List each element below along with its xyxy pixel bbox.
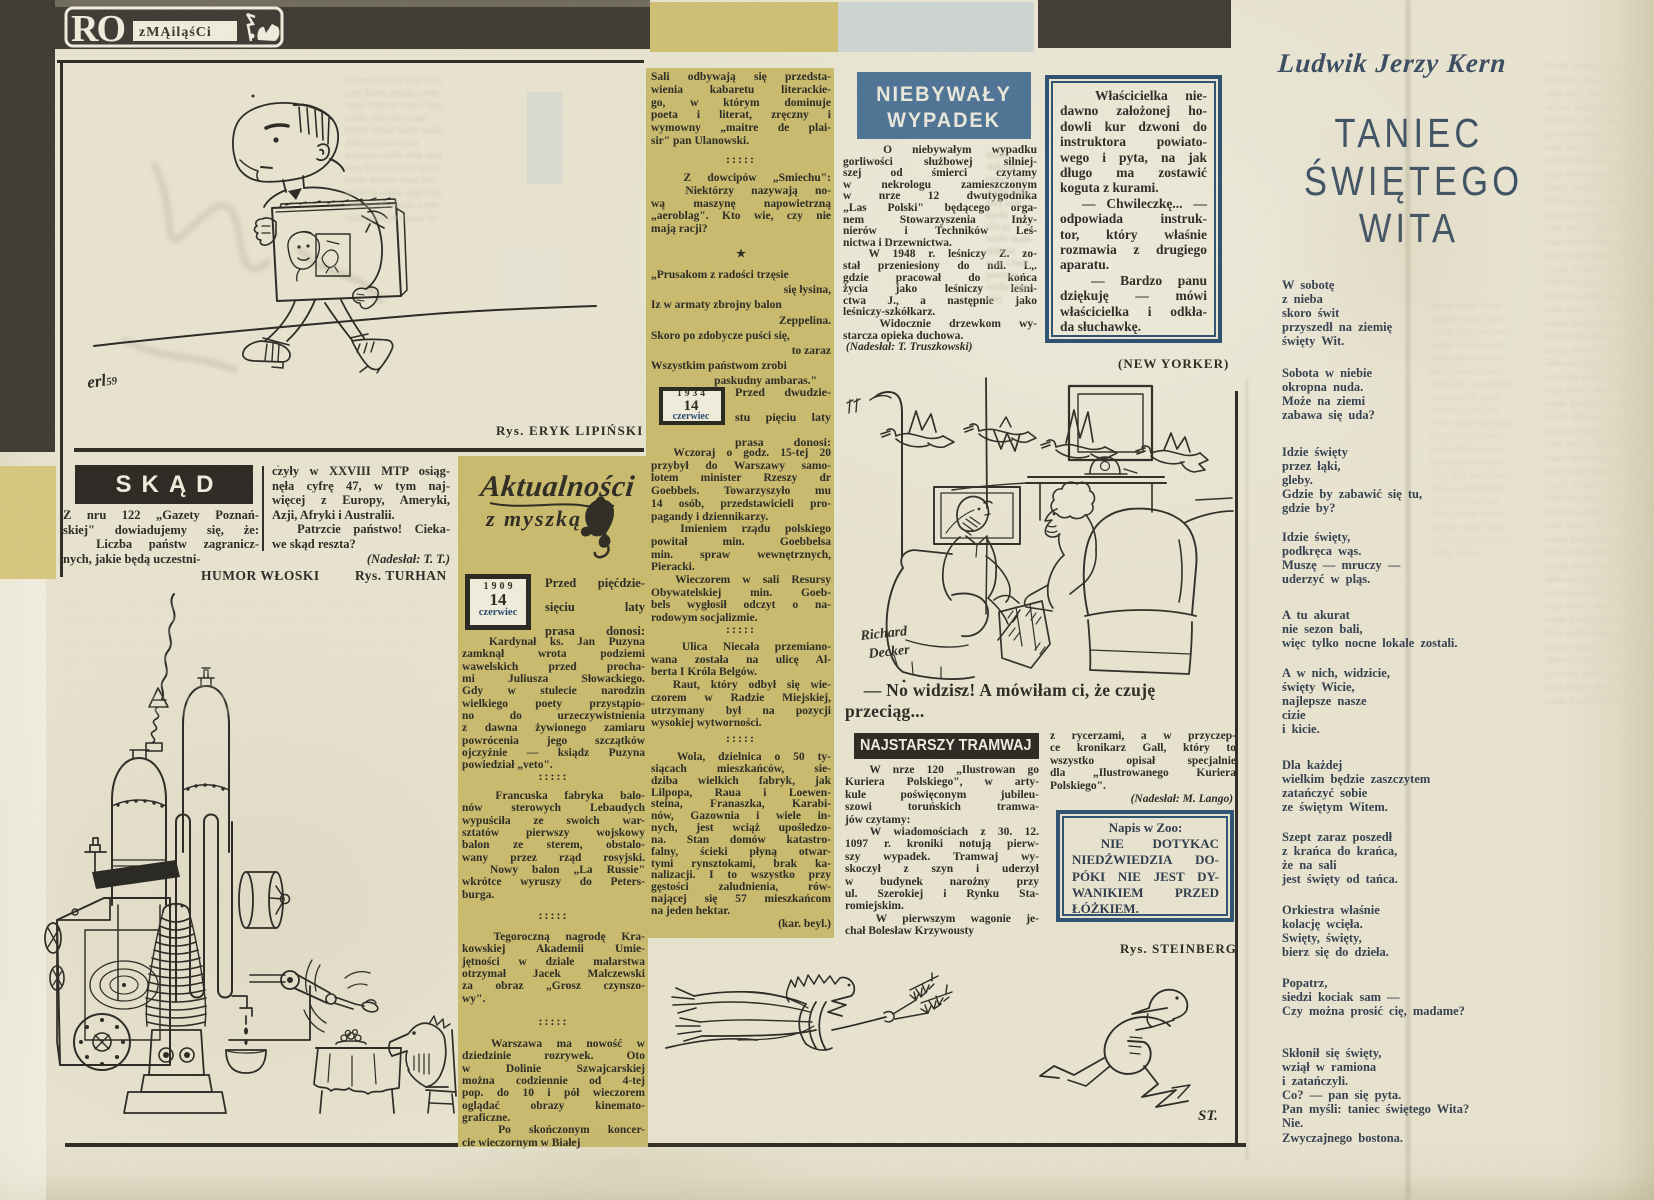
svg-text:ST.: ST. bbox=[1198, 1108, 1218, 1124]
